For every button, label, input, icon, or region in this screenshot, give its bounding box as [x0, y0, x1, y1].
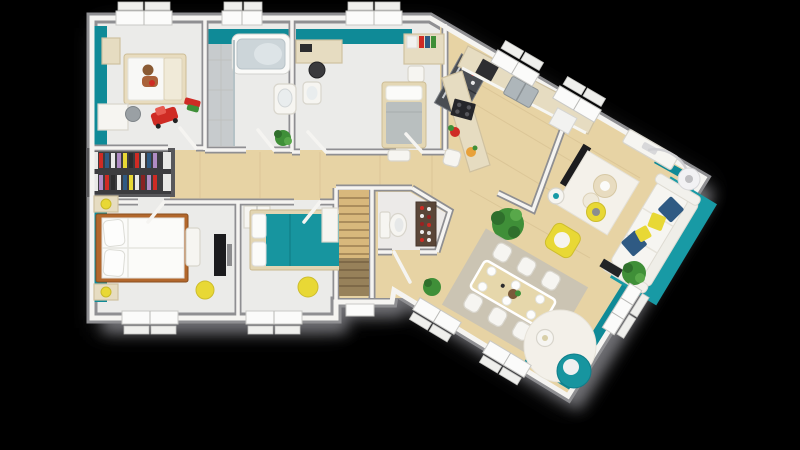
floorplan-svg [0, 0, 800, 450]
window-top-2 [222, 2, 262, 25]
floorplan-render [0, 0, 800, 450]
study-stool [408, 66, 424, 82]
wardrobe-closet [86, 148, 175, 197]
lamp [101, 199, 111, 209]
bathtub [232, 34, 290, 74]
window-bottom-3 [346, 304, 374, 316]
beanbag [298, 277, 318, 297]
lamp [101, 287, 111, 297]
dresser [322, 208, 338, 242]
plant-sofa-end [622, 261, 646, 285]
child-figure [143, 65, 154, 76]
wc-shelf [416, 202, 436, 246]
child-desk [98, 104, 128, 130]
staircase [339, 190, 369, 296]
bed-end-stool [388, 150, 410, 161]
plant-entry [423, 278, 441, 296]
study-basin [303, 82, 321, 104]
master-bed [96, 214, 188, 282]
master-armchair [196, 281, 214, 299]
side-table [548, 188, 564, 204]
child-desk-chair [126, 107, 141, 122]
bedroom-bench [186, 228, 200, 266]
bathroom-sink [274, 84, 296, 114]
child-shelf [102, 38, 120, 64]
toilet [380, 212, 407, 238]
study-chair [309, 62, 325, 78]
child-daybed [124, 54, 186, 104]
stair-void [339, 258, 369, 296]
kitchen-stool [442, 148, 462, 168]
